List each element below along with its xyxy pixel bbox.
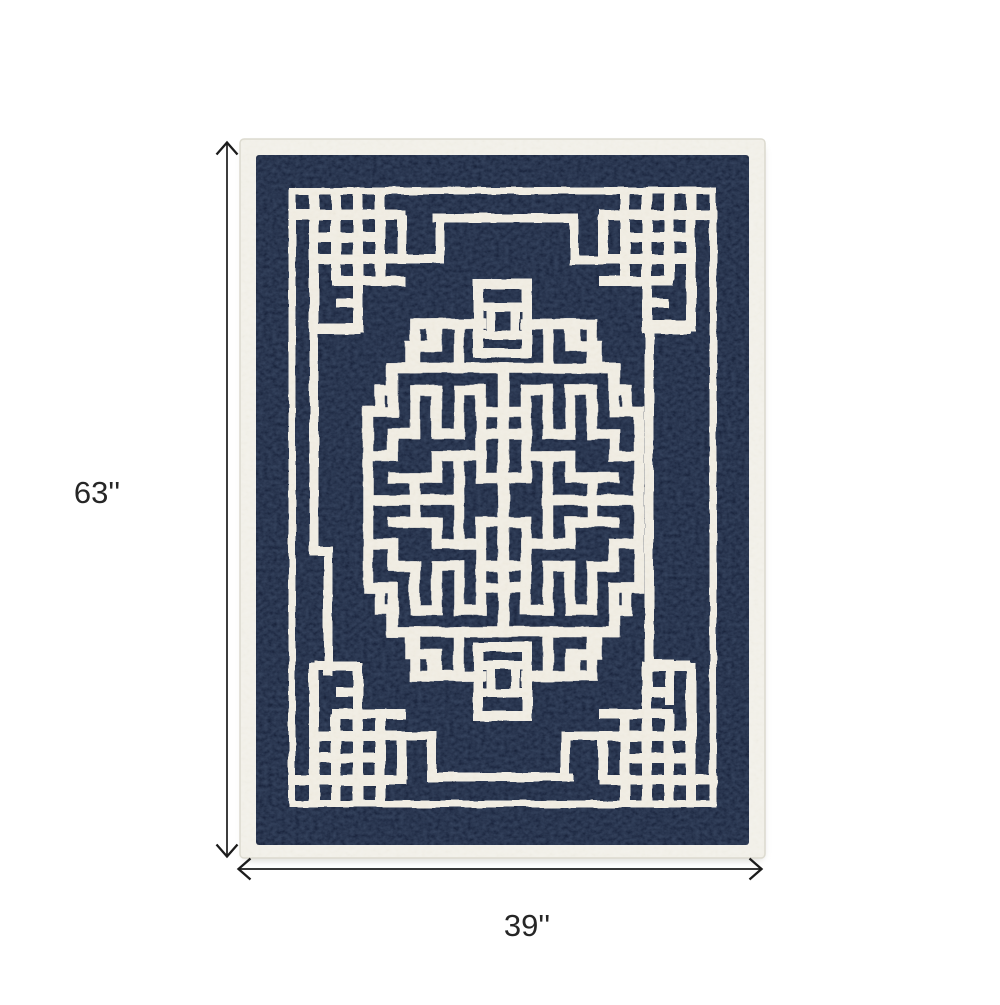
svg-text:63'': 63'' (74, 475, 120, 510)
svg-text:39'': 39'' (504, 908, 550, 943)
